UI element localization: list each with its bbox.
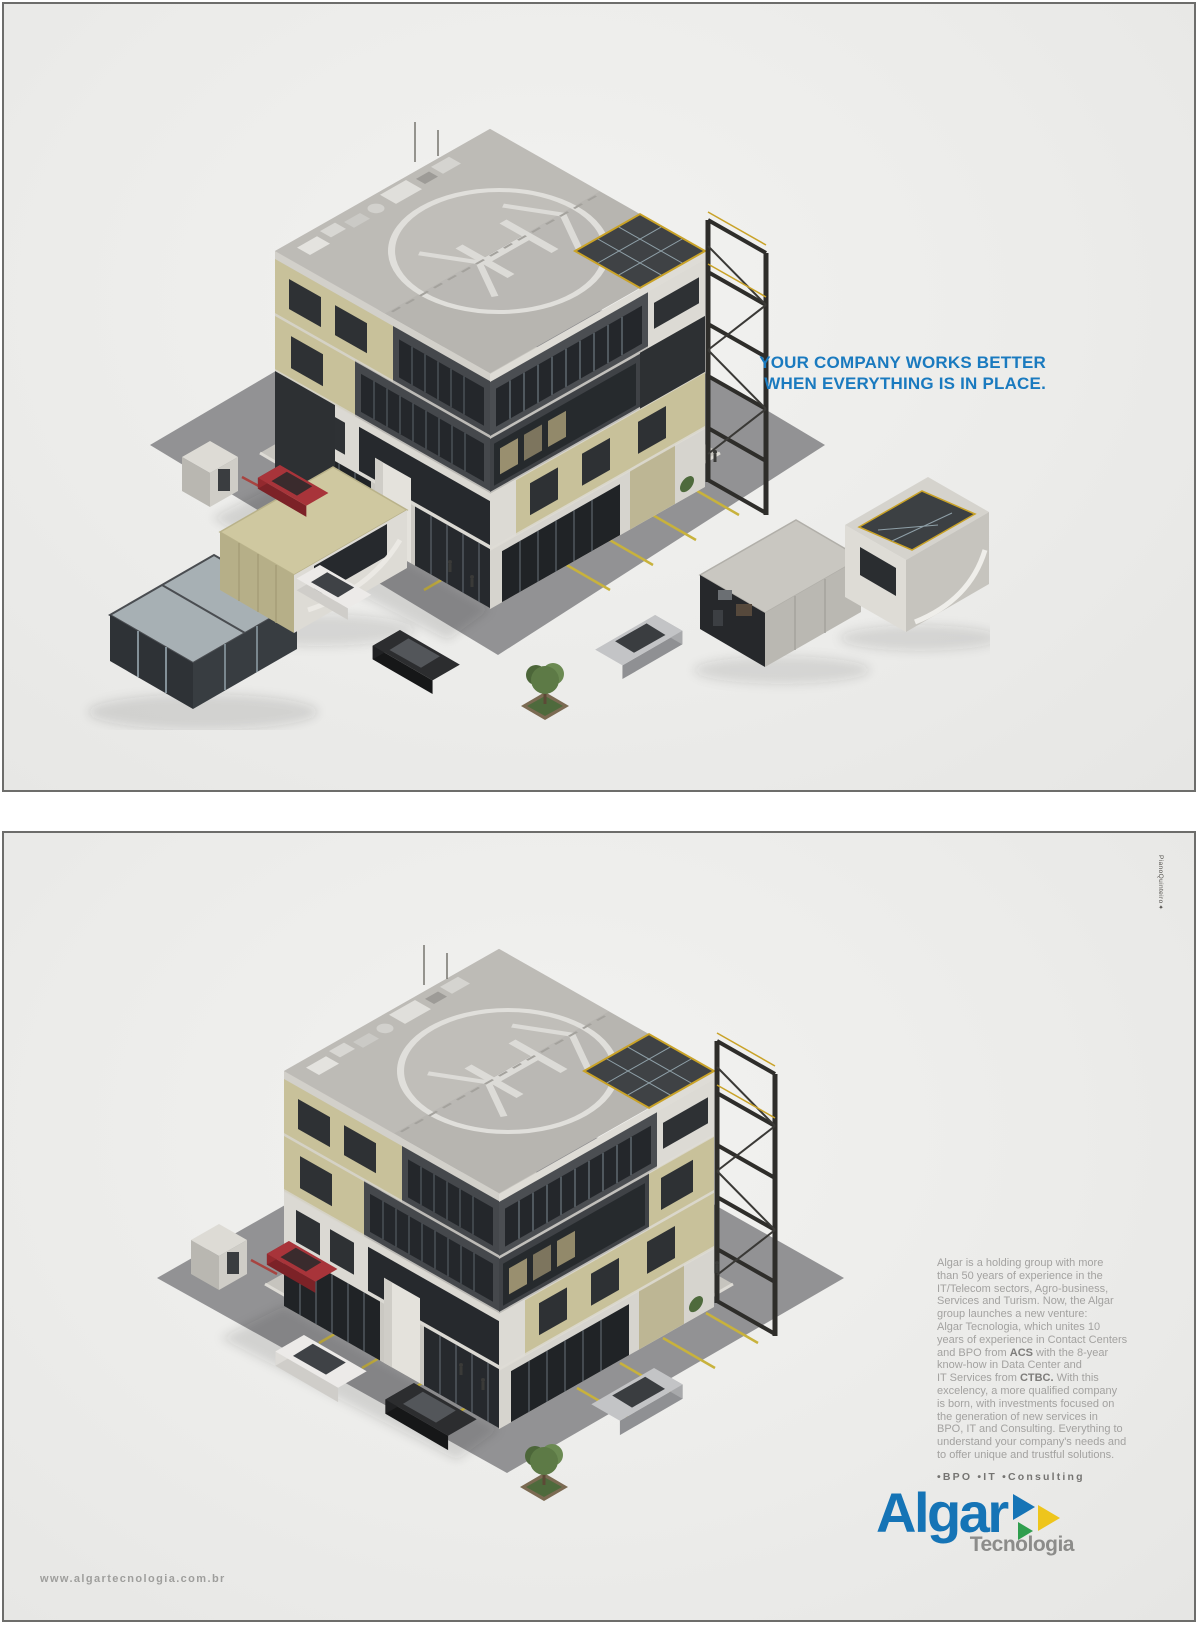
- assembled-building-illustration: [109, 873, 889, 1533]
- street-tree: [521, 663, 569, 720]
- advertisement-page: YOUR COMPANY WORKS BETTER WHEN EVERYTHIN…: [0, 0, 1200, 1626]
- ad-panel-top: YOUR COMPANY WORKS BETTER WHEN EVERYTHIN…: [2, 2, 1196, 792]
- headline-line2: WHEN EVERYTHING IS IN PLACE.: [759, 373, 1046, 394]
- body-copy: Algar is a holding group with morethan 5…: [937, 1257, 1137, 1462]
- headline-line1: YOUR COMPANY WORKS BETTER: [759, 352, 1046, 373]
- headline: YOUR COMPANY WORKS BETTER WHEN EVERYTHIN…: [759, 352, 1046, 394]
- website-url: www.algartecnologia.com.br: [40, 1573, 226, 1585]
- street-tree: [520, 1444, 568, 1501]
- detached-module-interior: [700, 520, 861, 667]
- body-copy-block: Algar is a holding group with morethan 5…: [937, 1257, 1137, 1483]
- credit-vertical: PianoQuinteiro✦: [1156, 855, 1164, 912]
- logo-wordmark: Algar: [876, 1488, 1007, 1538]
- algar-logo: Algar Tecnologia: [876, 1488, 1126, 1557]
- roof-antennas: [415, 122, 438, 162]
- roof-antennas: [424, 945, 447, 985]
- silver-car: [595, 615, 682, 679]
- exploded-building-illustration: [70, 70, 990, 730]
- ad-panel-bottom: Algar is a holding group with morethan 5…: [2, 831, 1196, 1622]
- detached-module-concrete: [845, 477, 989, 632]
- black-car: [373, 630, 460, 694]
